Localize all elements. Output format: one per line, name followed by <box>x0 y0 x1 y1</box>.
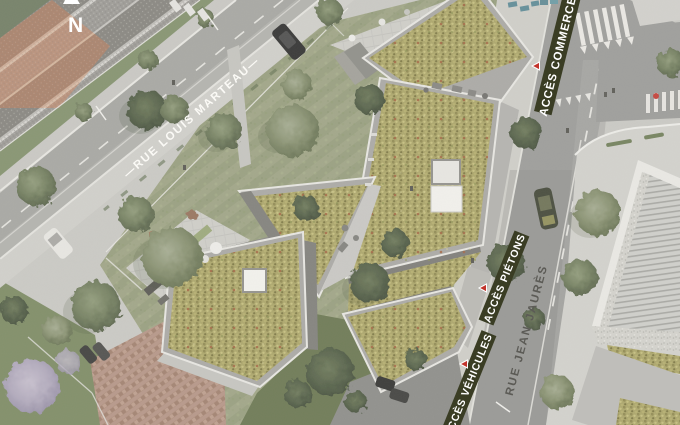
svg-text:N: N <box>68 14 83 37</box>
